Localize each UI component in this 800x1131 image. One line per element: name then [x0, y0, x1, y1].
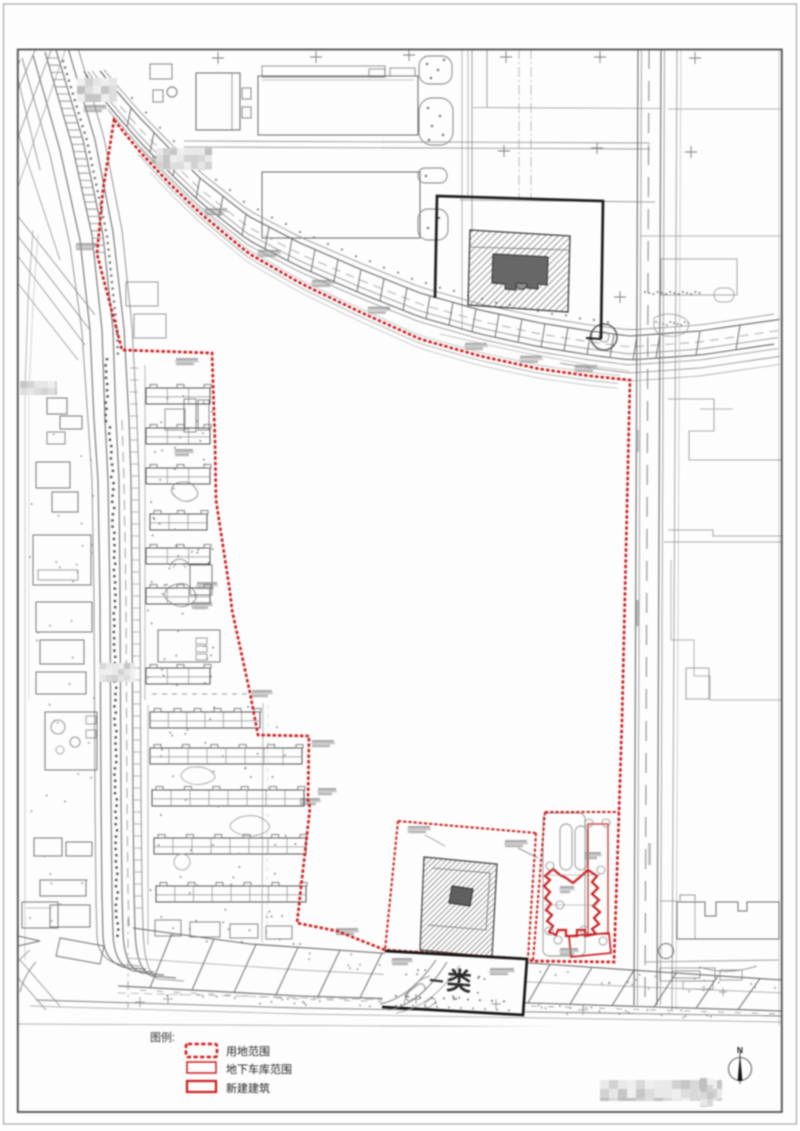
svg-text:地下车库范围: 地下车库范围 [226, 1062, 292, 1076]
svg-text:用地范围: 用地范围 [226, 1044, 270, 1058]
svg-text:类: 类 [446, 967, 474, 997]
svg-text:新建建筑: 新建建筑 [226, 1081, 270, 1095]
svg-text:图例:: 图例: [150, 1030, 175, 1044]
